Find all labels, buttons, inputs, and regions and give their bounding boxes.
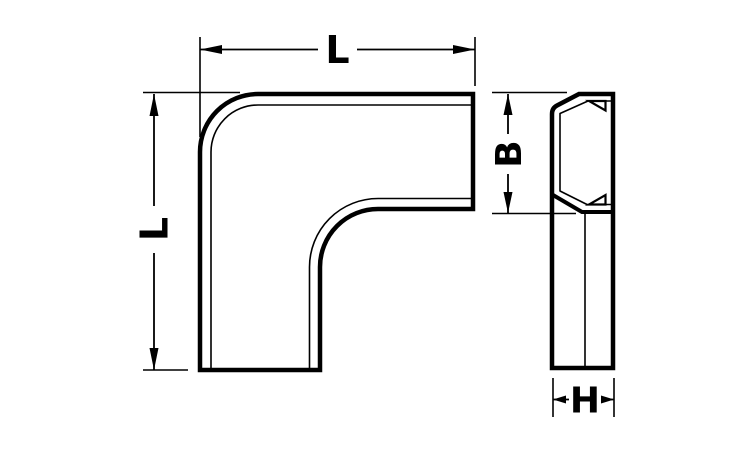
dimension-label-length-left: L	[133, 217, 177, 241]
technical-drawing-canvas: L L B H	[0, 0, 750, 450]
dimension-label-width-h: H	[570, 380, 600, 421]
arrowhead-left-icon	[553, 396, 566, 404]
dimension-label-height-b: B	[489, 140, 530, 167]
front-view-elbow	[200, 94, 473, 370]
arrowhead-right-icon	[453, 45, 475, 54]
front-view-outer-outline	[200, 94, 473, 370]
arrowhead-up-icon	[504, 94, 513, 115]
arrowhead-right-icon	[601, 396, 614, 404]
arrowhead-down-icon	[504, 192, 513, 213]
arrowhead-down-icon	[150, 348, 159, 370]
dimension-width-h: H	[553, 378, 614, 421]
arrowhead-left-icon	[200, 45, 222, 54]
side-view-profile	[552, 94, 613, 368]
dimension-label-length-top: L	[325, 28, 349, 72]
elbow-dimension-figure: L L B H	[0, 0, 750, 450]
arrowhead-up-icon	[150, 94, 159, 116]
side-view-silhouette	[552, 94, 613, 368]
